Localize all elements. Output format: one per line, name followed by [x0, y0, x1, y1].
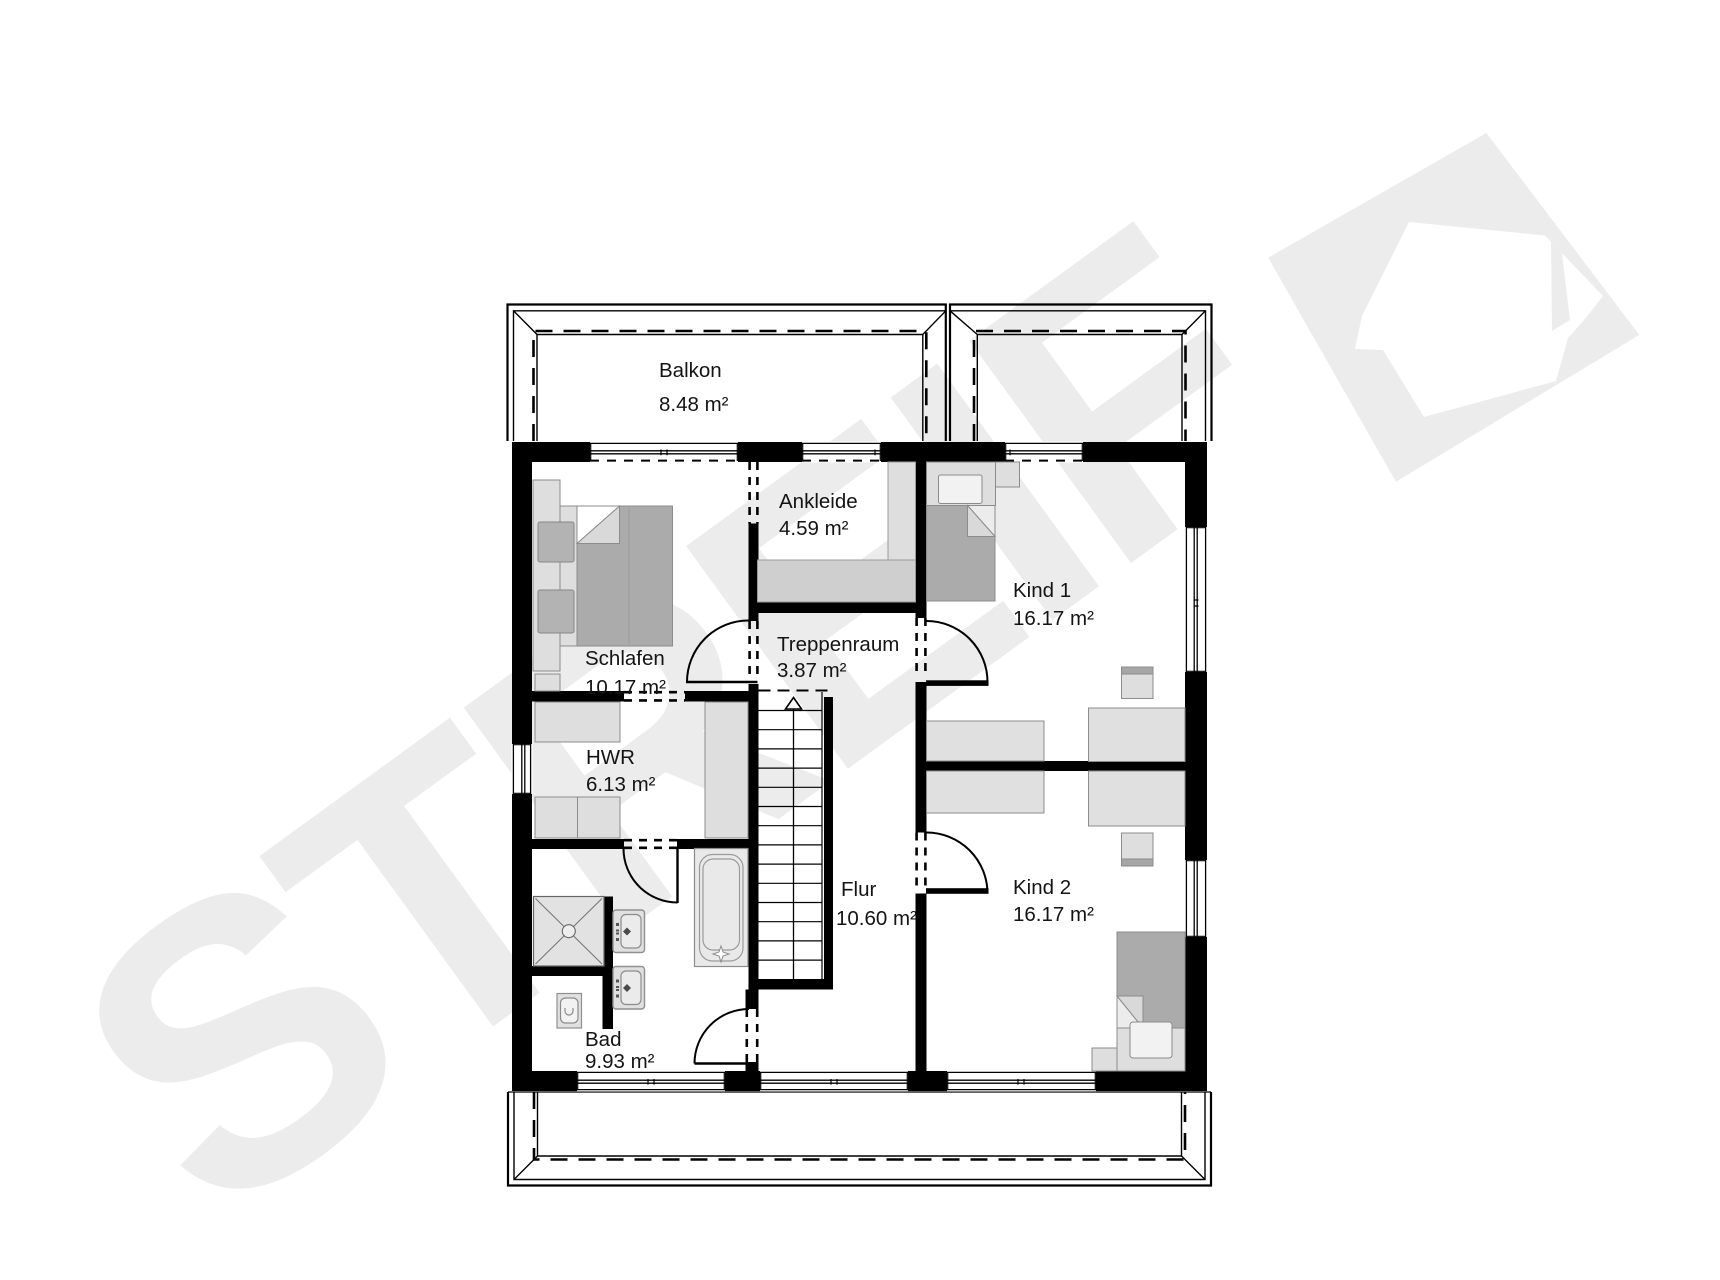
svg-text:3.87 m²: 3.87 m² [777, 659, 847, 682]
svg-text:Ankleide: Ankleide [779, 490, 858, 513]
svg-text:Kind 2: Kind 2 [1013, 876, 1071, 899]
svg-text:8.48 m²: 8.48 m² [659, 393, 729, 416]
svg-text:Treppenraum: Treppenraum [777, 633, 899, 656]
svg-text:Flur: Flur [841, 878, 876, 901]
svg-text:HWR: HWR [586, 746, 635, 769]
svg-text:6.13 m²: 6.13 m² [586, 773, 656, 796]
svg-text:Balkon: Balkon [659, 359, 722, 382]
svg-text:10.17 m²: 10.17 m² [585, 676, 666, 699]
svg-text:9.93 m²: 9.93 m² [585, 1050, 655, 1073]
svg-text:Kind 1: Kind 1 [1013, 579, 1071, 602]
svg-text:16.17 m²: 16.17 m² [1013, 607, 1094, 630]
svg-text:Bad: Bad [585, 1028, 621, 1051]
svg-text:16.17 m²: 16.17 m² [1013, 903, 1094, 926]
svg-text:10.60 m²: 10.60 m² [836, 907, 917, 930]
svg-text:4.59 m²: 4.59 m² [779, 517, 849, 540]
svg-text:Schlafen: Schlafen [585, 647, 665, 670]
